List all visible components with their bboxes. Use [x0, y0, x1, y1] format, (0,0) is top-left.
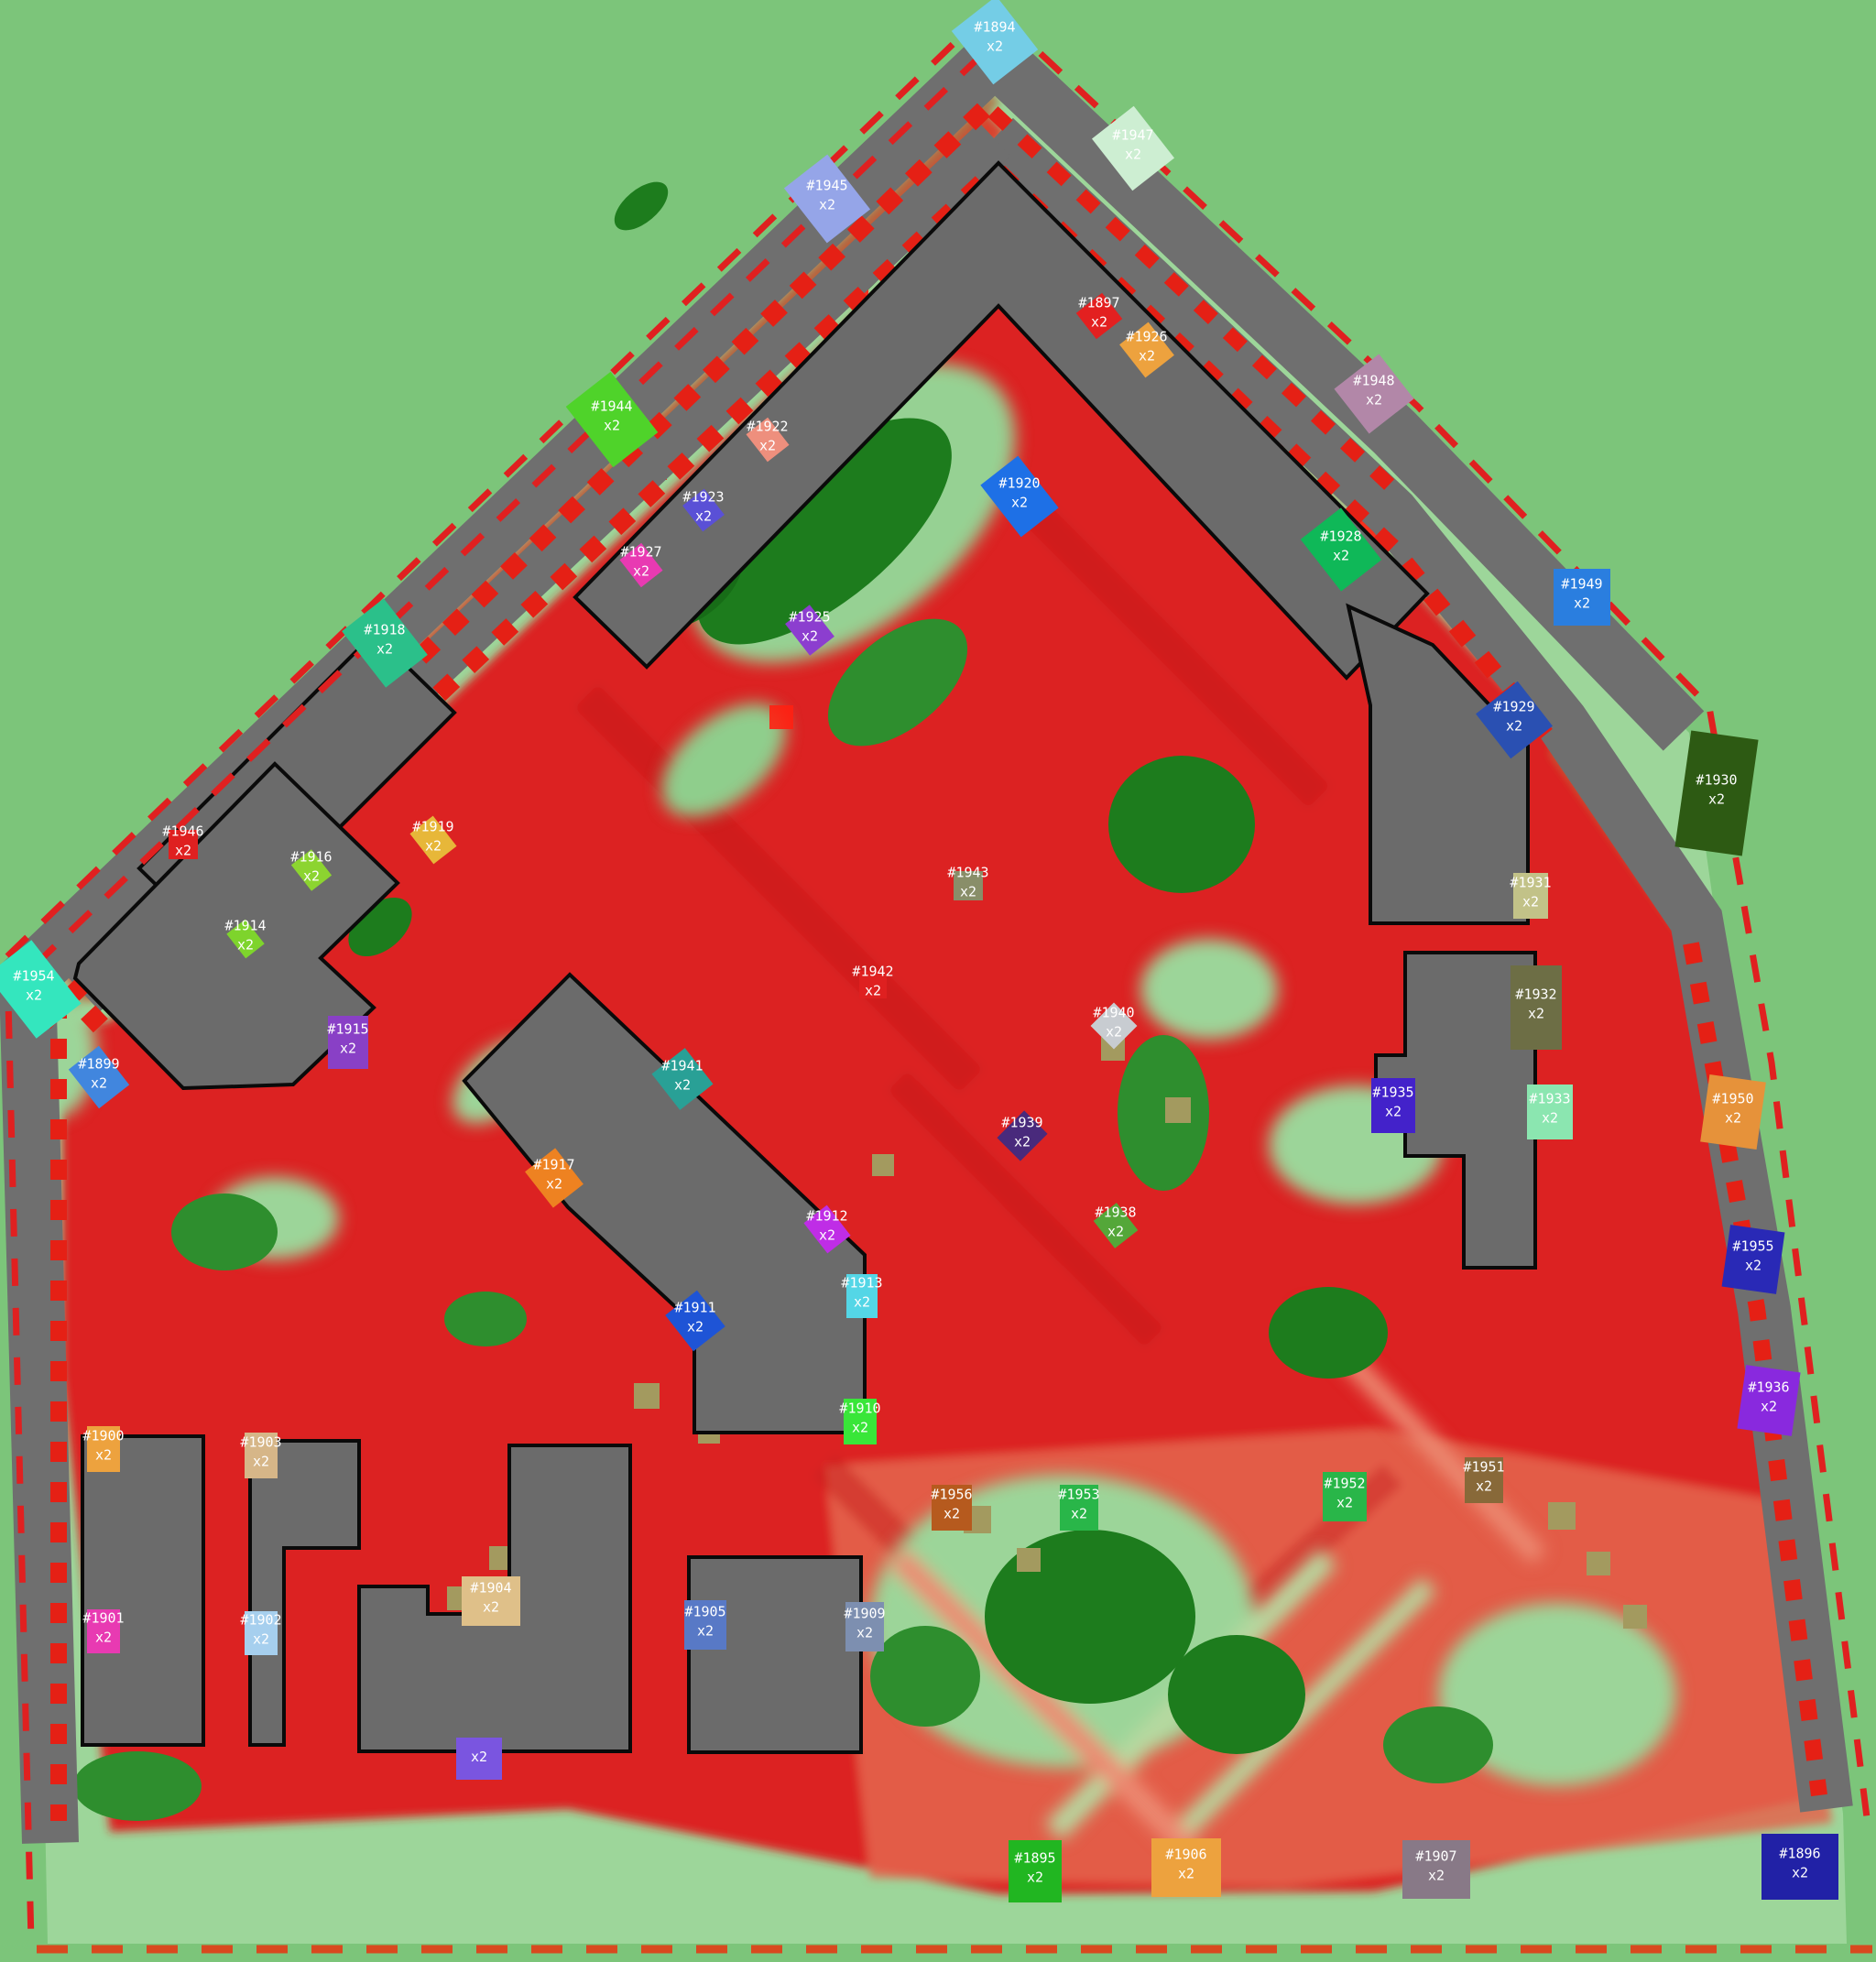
marker-label: #1918 x2: [364, 621, 405, 659]
marker-label: #1910 x2: [839, 1400, 880, 1438]
marker-label: #1922 x2: [747, 418, 788, 456]
marker-label: #1947 x2: [1112, 126, 1153, 165]
marker-label: #1905 x2: [684, 1603, 725, 1641]
marker-label: #1926 x2: [1126, 328, 1167, 366]
building-southwest-slab: [82, 1436, 203, 1745]
marker-label: #1932 x2: [1515, 986, 1556, 1024]
marker-label: x2: [471, 1748, 487, 1767]
marker-label: #1935 x2: [1372, 1084, 1413, 1122]
marker-label: #1955 x2: [1732, 1237, 1773, 1276]
marker-label: #1911 x2: [674, 1299, 715, 1337]
marker-label: #1904 x2: [470, 1579, 511, 1618]
marker-label: #1899 x2: [78, 1055, 119, 1094]
marker-label: #1944 x2: [591, 398, 632, 436]
marker-label: #1903 x2: [240, 1433, 281, 1472]
marker-label: #1950 x2: [1712, 1090, 1753, 1128]
marker-label: #1929 x2: [1493, 698, 1534, 736]
marker-label: #1936 x2: [1748, 1379, 1789, 1417]
site-map-canvas[interactable]: [0, 0, 1876, 1962]
marker-label: #1925 x2: [789, 608, 830, 647]
marker-label: #1954 x2: [13, 967, 54, 1006]
marker-label: #1900 x2: [82, 1427, 124, 1466]
marker-label: #1913 x2: [841, 1274, 882, 1313]
marker-label: #1940 x2: [1093, 1004, 1134, 1042]
marker-label: #1939 x2: [1001, 1114, 1042, 1152]
marker-label: #1919 x2: [412, 818, 453, 856]
marker-label: #1956 x2: [931, 1486, 972, 1524]
marker-label: #1915 x2: [327, 1020, 368, 1059]
marker-label: #1917 x2: [533, 1156, 574, 1194]
marker-label: #1945 x2: [806, 177, 847, 215]
marker-label: #1951 x2: [1463, 1458, 1504, 1497]
marker-label: #1942 x2: [852, 963, 893, 1001]
marker-label: #1895 x2: [1014, 1849, 1055, 1888]
marker-label: #1923 x2: [682, 488, 724, 527]
marker-label: #1896 x2: [1779, 1845, 1820, 1883]
marker-label: #1930 x2: [1696, 771, 1737, 810]
marker-label: #1948 x2: [1353, 372, 1394, 410]
marker-label: #1949 x2: [1561, 575, 1602, 614]
marker-label: #1909 x2: [844, 1605, 885, 1643]
marker-label: #1928 x2: [1320, 528, 1361, 566]
marker-label: #1952 x2: [1324, 1475, 1365, 1513]
marker-label: #1907 x2: [1415, 1848, 1456, 1886]
marker-label: #1946 x2: [162, 823, 203, 861]
marker-label: #1943 x2: [947, 864, 988, 902]
marker-label: #1941 x2: [661, 1057, 703, 1095]
building-south-right: [689, 1557, 861, 1752]
marker-label: #1953 x2: [1058, 1486, 1099, 1524]
marker-label: #1901 x2: [82, 1609, 124, 1648]
marker-label: #1894 x2: [974, 18, 1015, 57]
marker-label: #1933 x2: [1529, 1090, 1570, 1128]
marker-label: #1938 x2: [1095, 1204, 1136, 1242]
marker-label: #1920 x2: [998, 474, 1040, 513]
marker-label: #1914 x2: [224, 917, 266, 955]
marker-label: #1927 x2: [620, 543, 661, 582]
marker-label: #1931 x2: [1510, 874, 1551, 912]
marker-label: #1897 x2: [1078, 294, 1119, 332]
marker-label: #1906 x2: [1165, 1846, 1206, 1884]
marker-label: #1902 x2: [240, 1611, 281, 1650]
marker-label: #1912 x2: [806, 1207, 847, 1246]
marker-label: #1916 x2: [290, 848, 332, 887]
simulation-map-stage: #1894 x2#1947 x2#1945 x2#1897 x2#1926 x2…: [0, 0, 1876, 1962]
